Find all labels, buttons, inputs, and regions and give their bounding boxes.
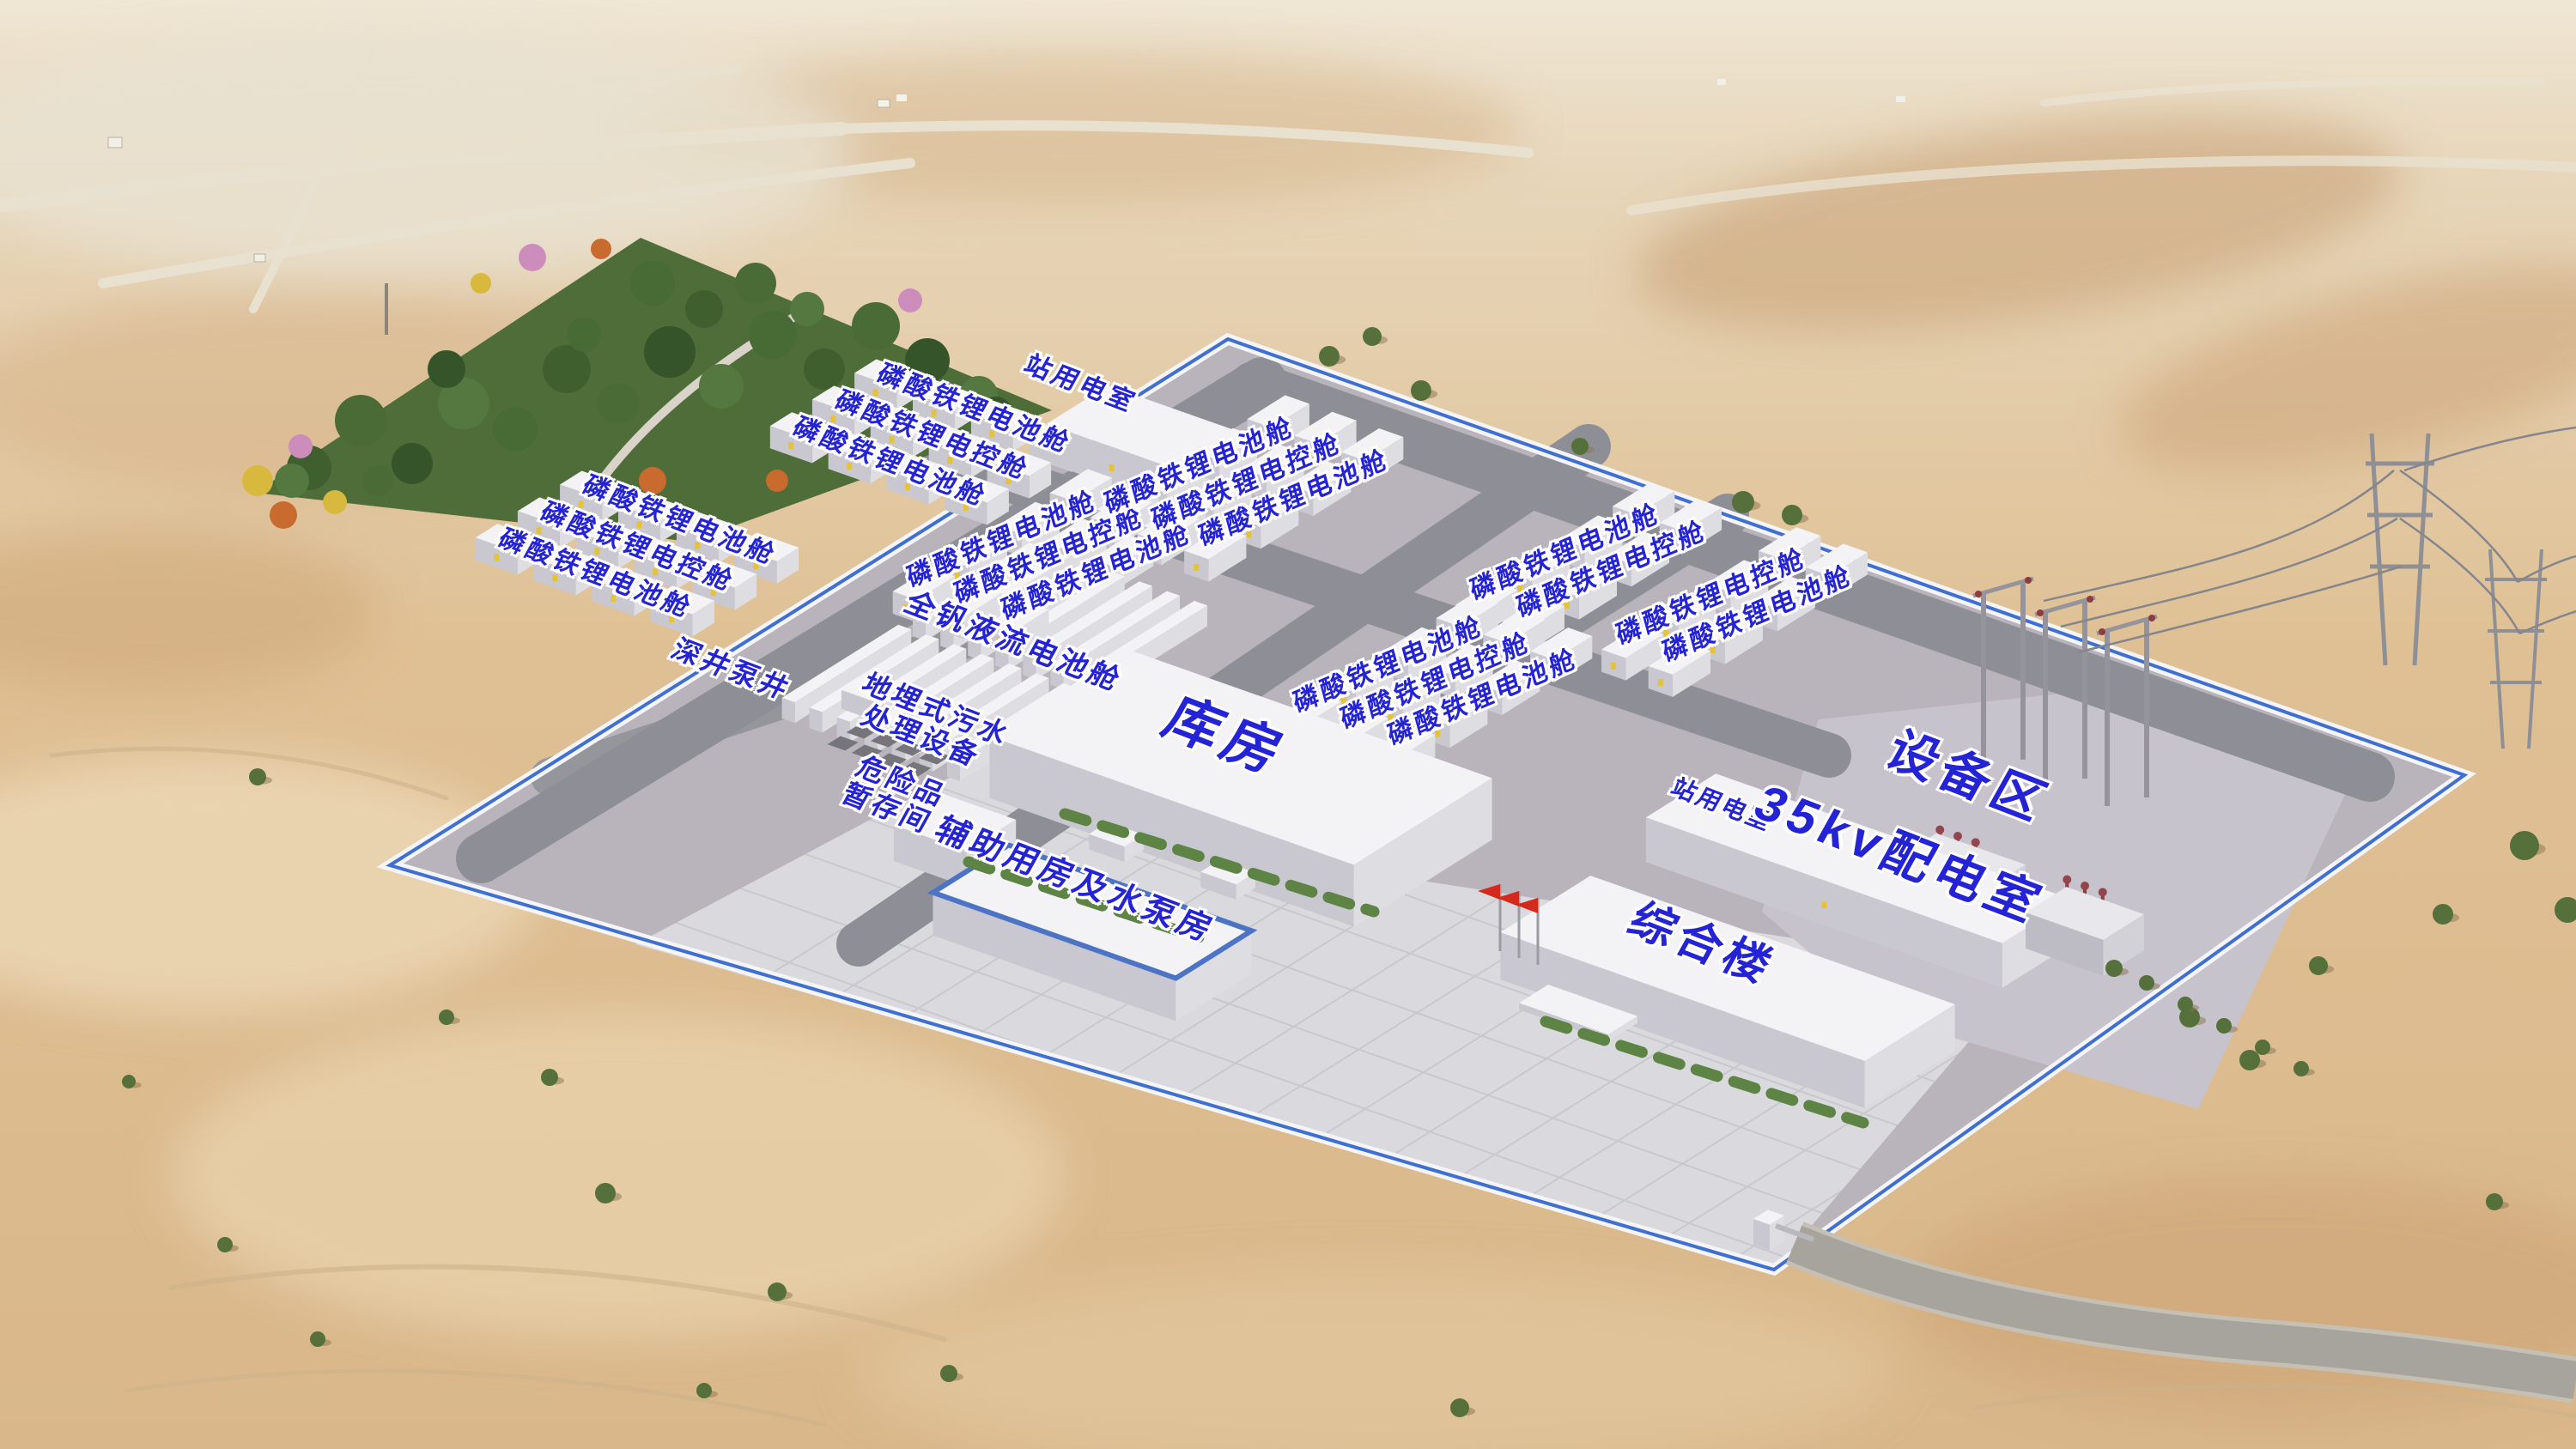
desert-shrub (2255, 1040, 2270, 1055)
desert-shrub (122, 1075, 136, 1088)
desert-shrub (1732, 491, 1754, 513)
desert-shrub (768, 1282, 787, 1301)
tree (804, 349, 845, 390)
tree (493, 407, 538, 452)
tree (392, 443, 433, 484)
flowering-shrub (519, 244, 546, 271)
desert-shrub (2239, 1050, 2260, 1070)
desert-shrub (1782, 505, 1802, 525)
desert-shrub (2510, 831, 2539, 860)
tree (567, 318, 601, 352)
flowering-shrub (898, 288, 922, 312)
desert-shrub (2105, 960, 2123, 977)
tree (790, 292, 824, 326)
flowering-shrub (766, 470, 788, 492)
desert-shrub (1319, 346, 1340, 367)
tree (685, 290, 723, 328)
desert-shrub (2139, 975, 2154, 991)
desert-shrub (310, 1331, 325, 1347)
tree (630, 261, 675, 306)
desert-shrub (1411, 380, 1431, 401)
desert-shrub (1450, 1398, 1469, 1417)
tree (275, 464, 309, 498)
desert-shrub (595, 1183, 616, 1203)
tree (699, 364, 744, 409)
tree (543, 345, 591, 393)
tree (362, 465, 393, 496)
flowering-shrub (289, 434, 313, 458)
desert-shrub (249, 768, 266, 785)
site-aerial-render: 磷酸铁锂电池舱磷酸铁锂电控舱磷酸铁锂电池舱磷酸铁锂电池舱磷酸铁锂电控舱磷酸铁锂电… (0, 0, 2576, 1449)
tree (735, 263, 776, 304)
desert-shrub (940, 1365, 957, 1382)
desert-shrub (1571, 438, 1589, 455)
desert-shrub (2178, 997, 2193, 1012)
flowering-shrub (270, 501, 297, 529)
flowering-shrub (242, 465, 273, 496)
tree (852, 302, 900, 350)
tree (335, 395, 386, 446)
scene-graphics (0, 0, 2576, 1449)
desert-shrub (2293, 1061, 2309, 1076)
tree (644, 326, 696, 378)
desert-shrub (2486, 1193, 2503, 1210)
flowering-shrub (471, 273, 491, 294)
desert-shrub (2309, 956, 2328, 975)
desert-shrub (217, 1237, 233, 1252)
flowering-shrub (591, 239, 611, 259)
tree (428, 350, 465, 388)
flowering-shrub (323, 490, 347, 514)
tree (598, 383, 639, 424)
desert-shrub (439, 1009, 454, 1025)
desert-shrub (1363, 327, 1382, 346)
flowering-shrub (639, 467, 666, 494)
desert-shrub (541, 1069, 558, 1086)
desert-shrub (2433, 904, 2453, 925)
tree (749, 311, 797, 359)
desert-shrub (2216, 1018, 2232, 1034)
desert-shrub (696, 1383, 712, 1398)
